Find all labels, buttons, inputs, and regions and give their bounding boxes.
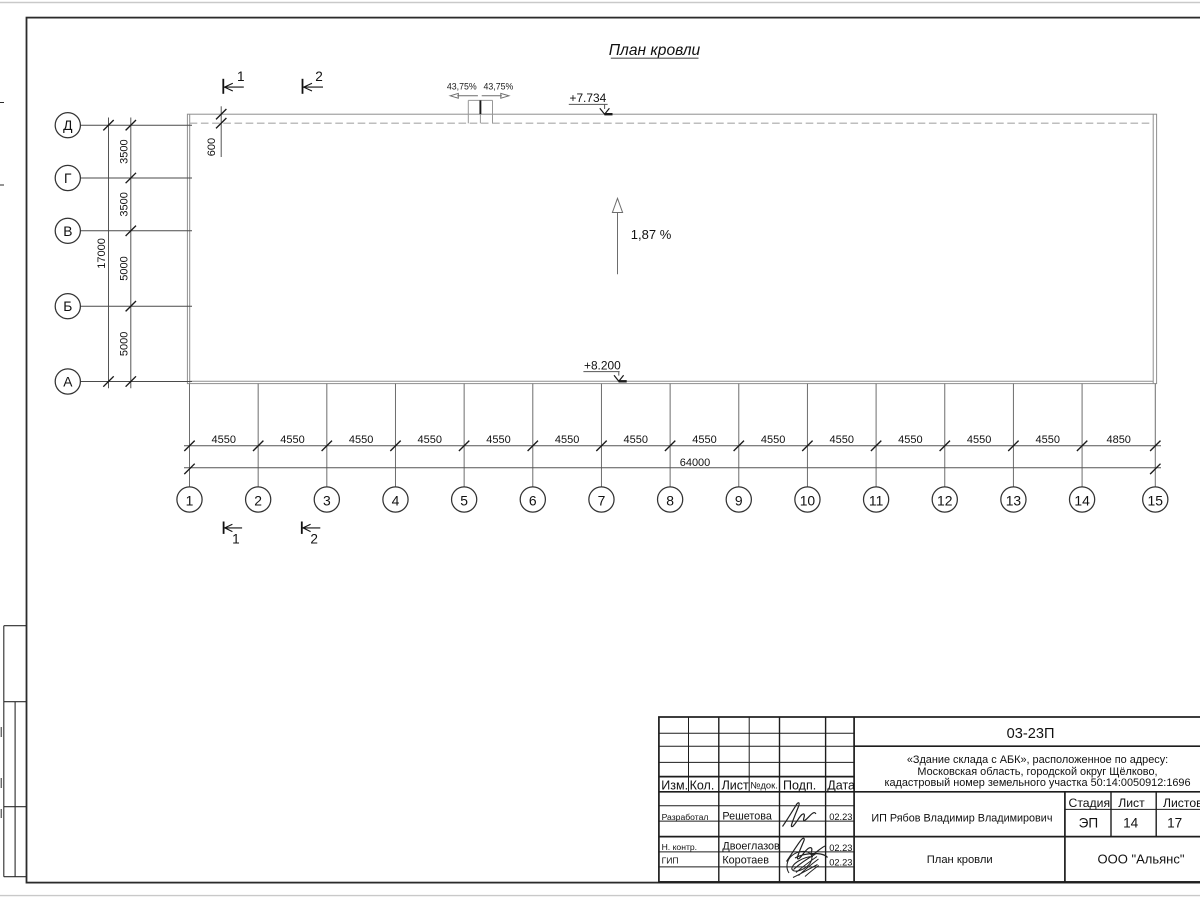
svg-text:А: А bbox=[63, 375, 73, 390]
svg-text:Д: Д bbox=[63, 118, 73, 133]
svg-text:2: 2 bbox=[315, 69, 323, 84]
svg-text:15: 15 bbox=[1148, 493, 1164, 509]
svg-text:4550: 4550 bbox=[280, 434, 304, 446]
svg-text:4550: 4550 bbox=[830, 434, 854, 446]
svg-text:Б: Б bbox=[63, 299, 72, 314]
svg-text:13: 13 bbox=[1006, 493, 1022, 509]
svg-text:Лист: Лист bbox=[1118, 796, 1145, 810]
svg-text:Г: Г bbox=[64, 171, 72, 186]
svg-text:Разработал: Разработал bbox=[662, 812, 709, 822]
svg-text:4550: 4550 bbox=[898, 434, 922, 446]
svg-text:9: 9 bbox=[735, 493, 743, 509]
svg-text:4550: 4550 bbox=[418, 434, 442, 446]
svg-text:14: 14 bbox=[1074, 493, 1090, 509]
svg-text:43,75%: 43,75% bbox=[447, 82, 477, 92]
svg-text:Лист: Лист bbox=[722, 779, 749, 793]
svg-text:6: 6 bbox=[529, 493, 537, 509]
svg-text:5000: 5000 bbox=[118, 256, 130, 280]
svg-text:Подп.: Подп. bbox=[783, 779, 816, 793]
svg-text:Изм.: Изм. bbox=[661, 779, 688, 793]
svg-text:ИП Рябов Владимир Владимирович: ИП Рябов Владимир Владимирович bbox=[871, 812, 1052, 824]
svg-text:Коротаев: Коротаев bbox=[722, 855, 769, 867]
svg-text:Н. контр.: Н. контр. bbox=[662, 842, 697, 852]
svg-text:3500: 3500 bbox=[118, 139, 130, 163]
svg-text:2: 2 bbox=[254, 493, 262, 509]
svg-text:17000: 17000 bbox=[96, 238, 108, 269]
svg-text:4550: 4550 bbox=[624, 434, 648, 446]
svg-text:4850: 4850 bbox=[1106, 434, 1130, 446]
svg-text:3: 3 bbox=[323, 493, 331, 509]
svg-text:10: 10 bbox=[800, 493, 816, 509]
svg-text:Стадия: Стадия bbox=[1069, 796, 1111, 810]
svg-text:1,87 %: 1,87 % bbox=[631, 227, 672, 242]
svg-text:11: 11 bbox=[869, 493, 884, 509]
svg-text:4550: 4550 bbox=[555, 434, 579, 446]
svg-text:03-23П: 03-23П bbox=[1007, 726, 1055, 742]
svg-text:3500: 3500 bbox=[118, 192, 130, 216]
svg-text:ГИП: ГИП bbox=[662, 856, 679, 866]
svg-text:1: 1 bbox=[232, 532, 240, 547]
svg-text:7: 7 bbox=[598, 493, 606, 509]
svg-text:+7.734: +7.734 bbox=[570, 91, 607, 105]
svg-text:43,75%: 43,75% bbox=[483, 82, 513, 92]
svg-text:12: 12 bbox=[937, 493, 953, 509]
svg-text:1: 1 bbox=[186, 493, 194, 509]
svg-text:Листов: Листов bbox=[1163, 796, 1200, 810]
svg-text:4550: 4550 bbox=[1036, 434, 1060, 446]
svg-text:4550: 4550 bbox=[692, 434, 716, 446]
svg-text:5: 5 bbox=[460, 493, 468, 509]
svg-text:8: 8 bbox=[666, 493, 674, 509]
svg-text:1: 1 bbox=[237, 69, 245, 84]
svg-text:«Здание склада с АБК», располо: «Здание склада с АБК», расположенное по … bbox=[907, 754, 1168, 766]
svg-text:4: 4 bbox=[392, 493, 400, 509]
svg-text:4550: 4550 bbox=[967, 434, 991, 446]
svg-text:02.23: 02.23 bbox=[829, 843, 852, 853]
svg-text:4550: 4550 bbox=[349, 434, 373, 446]
svg-text:Кол.: Кол. bbox=[690, 779, 715, 793]
svg-text:Двоеглазов: Двоеглазов bbox=[722, 841, 780, 853]
svg-text:+8.200: +8.200 bbox=[584, 358, 621, 372]
svg-text:4550: 4550 bbox=[761, 434, 785, 446]
svg-text:4550: 4550 bbox=[212, 434, 236, 446]
svg-text:ООО "Альянс": ООО "Альянс" bbox=[1098, 852, 1185, 867]
svg-text:64000: 64000 bbox=[680, 457, 711, 469]
svg-text:02.23: 02.23 bbox=[829, 812, 852, 822]
svg-text:5000: 5000 bbox=[118, 332, 130, 356]
svg-text:17: 17 bbox=[1167, 816, 1182, 831]
svg-text:Дата: Дата bbox=[827, 779, 855, 793]
svg-text:План кровли: План кровли bbox=[927, 854, 993, 866]
svg-text:4550: 4550 bbox=[486, 434, 510, 446]
svg-text:Решетова: Решетова bbox=[722, 811, 772, 823]
svg-text:14: 14 bbox=[1123, 816, 1139, 831]
svg-text:№док.: №док. bbox=[750, 780, 777, 791]
svg-text:кадастровый номер земельного у: кадастровый номер земельного участка 50:… bbox=[884, 777, 1190, 789]
svg-text:600: 600 bbox=[206, 138, 218, 156]
svg-text:ЭП: ЭП bbox=[1079, 816, 1099, 831]
svg-text:В: В bbox=[63, 224, 72, 239]
svg-text:План кровли: План кровли bbox=[609, 42, 701, 59]
svg-text:02.23: 02.23 bbox=[829, 857, 852, 867]
svg-text:2: 2 bbox=[310, 532, 318, 547]
